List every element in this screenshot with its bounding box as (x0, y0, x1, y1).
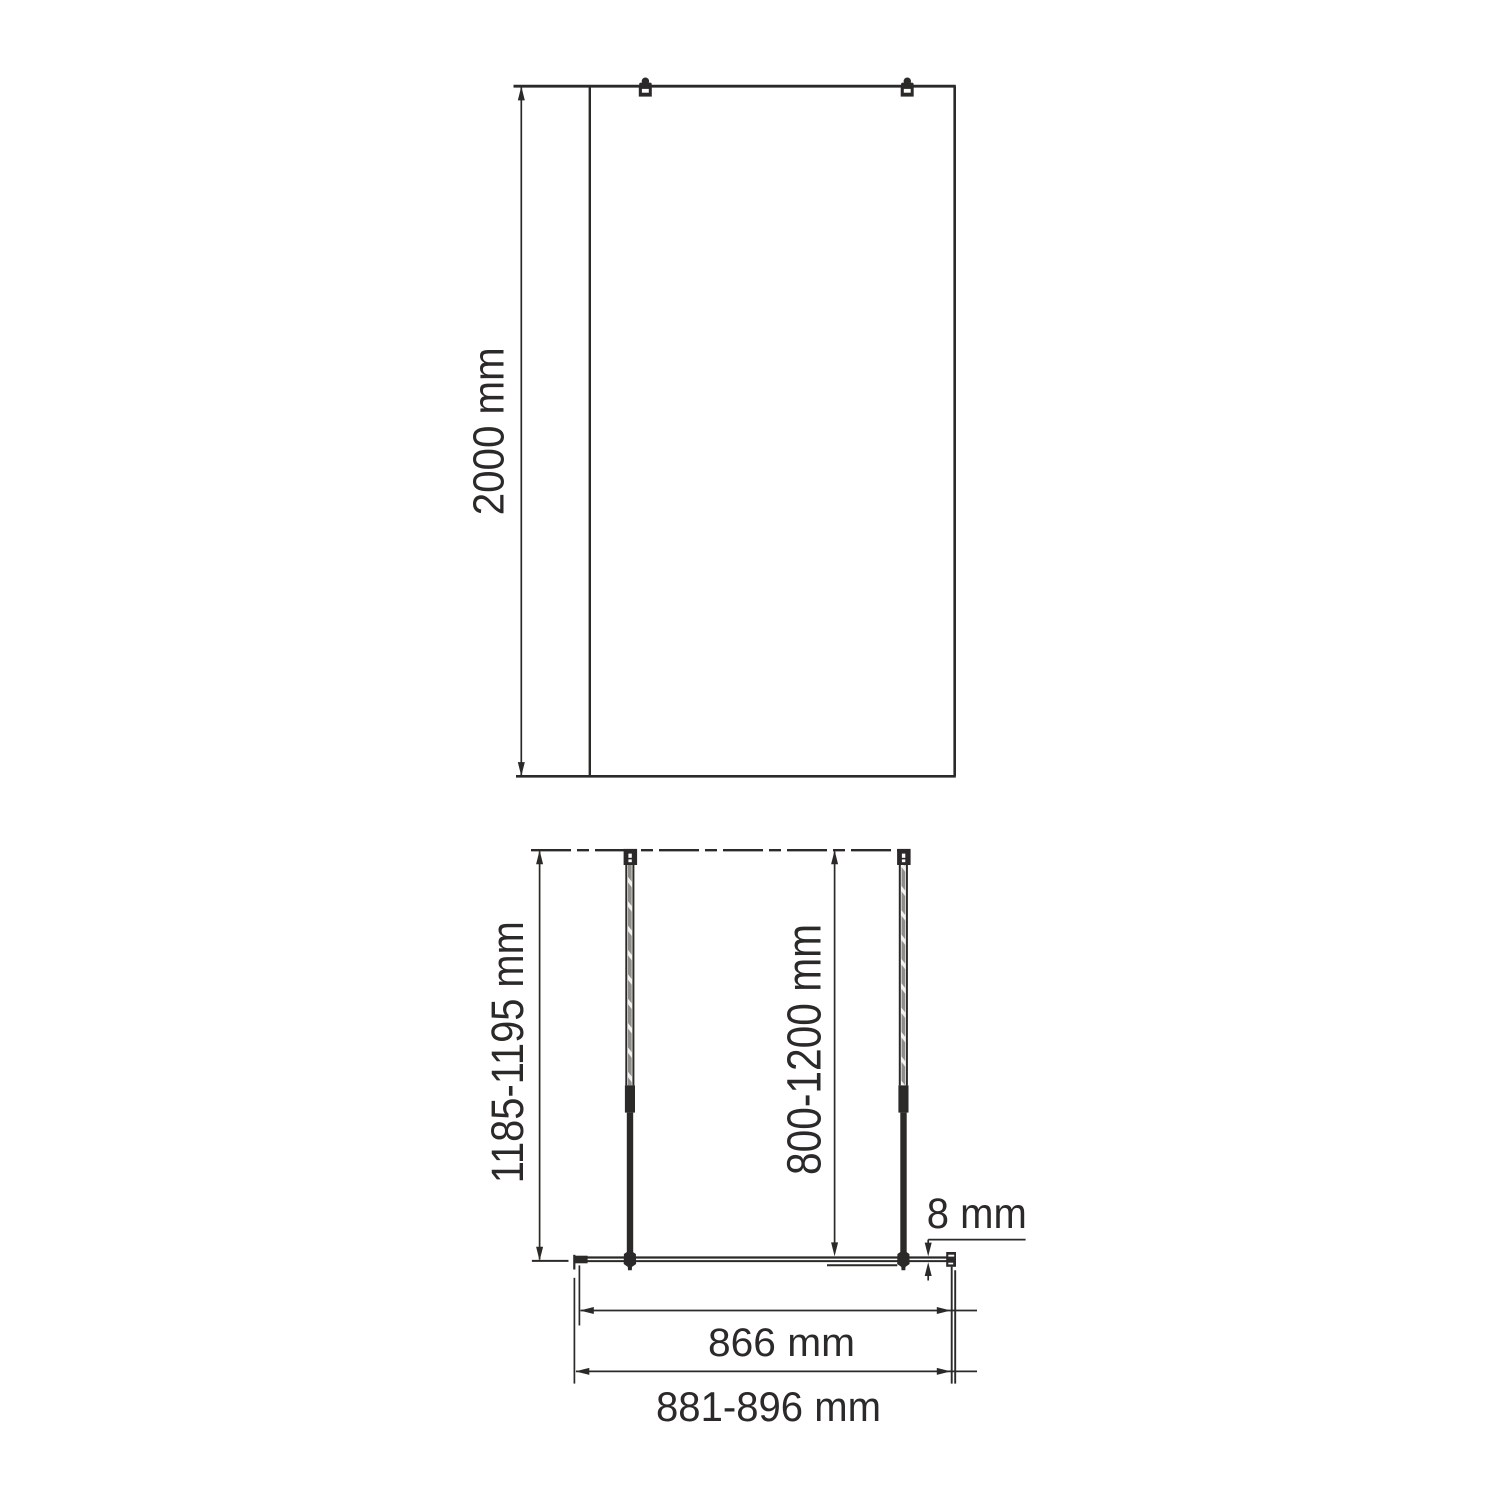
svg-text:881-896 mm: 881-896 mm (656, 1383, 881, 1430)
svg-text:800-1200 mm: 800-1200 mm (779, 924, 832, 1175)
svg-text:866 mm: 866 mm (708, 1321, 855, 1365)
svg-text:1185-1195 mm: 1185-1195 mm (482, 921, 533, 1183)
svg-text:8 mm: 8 mm (927, 1191, 1027, 1238)
svg-text:2000 mm: 2000 mm (465, 347, 514, 515)
